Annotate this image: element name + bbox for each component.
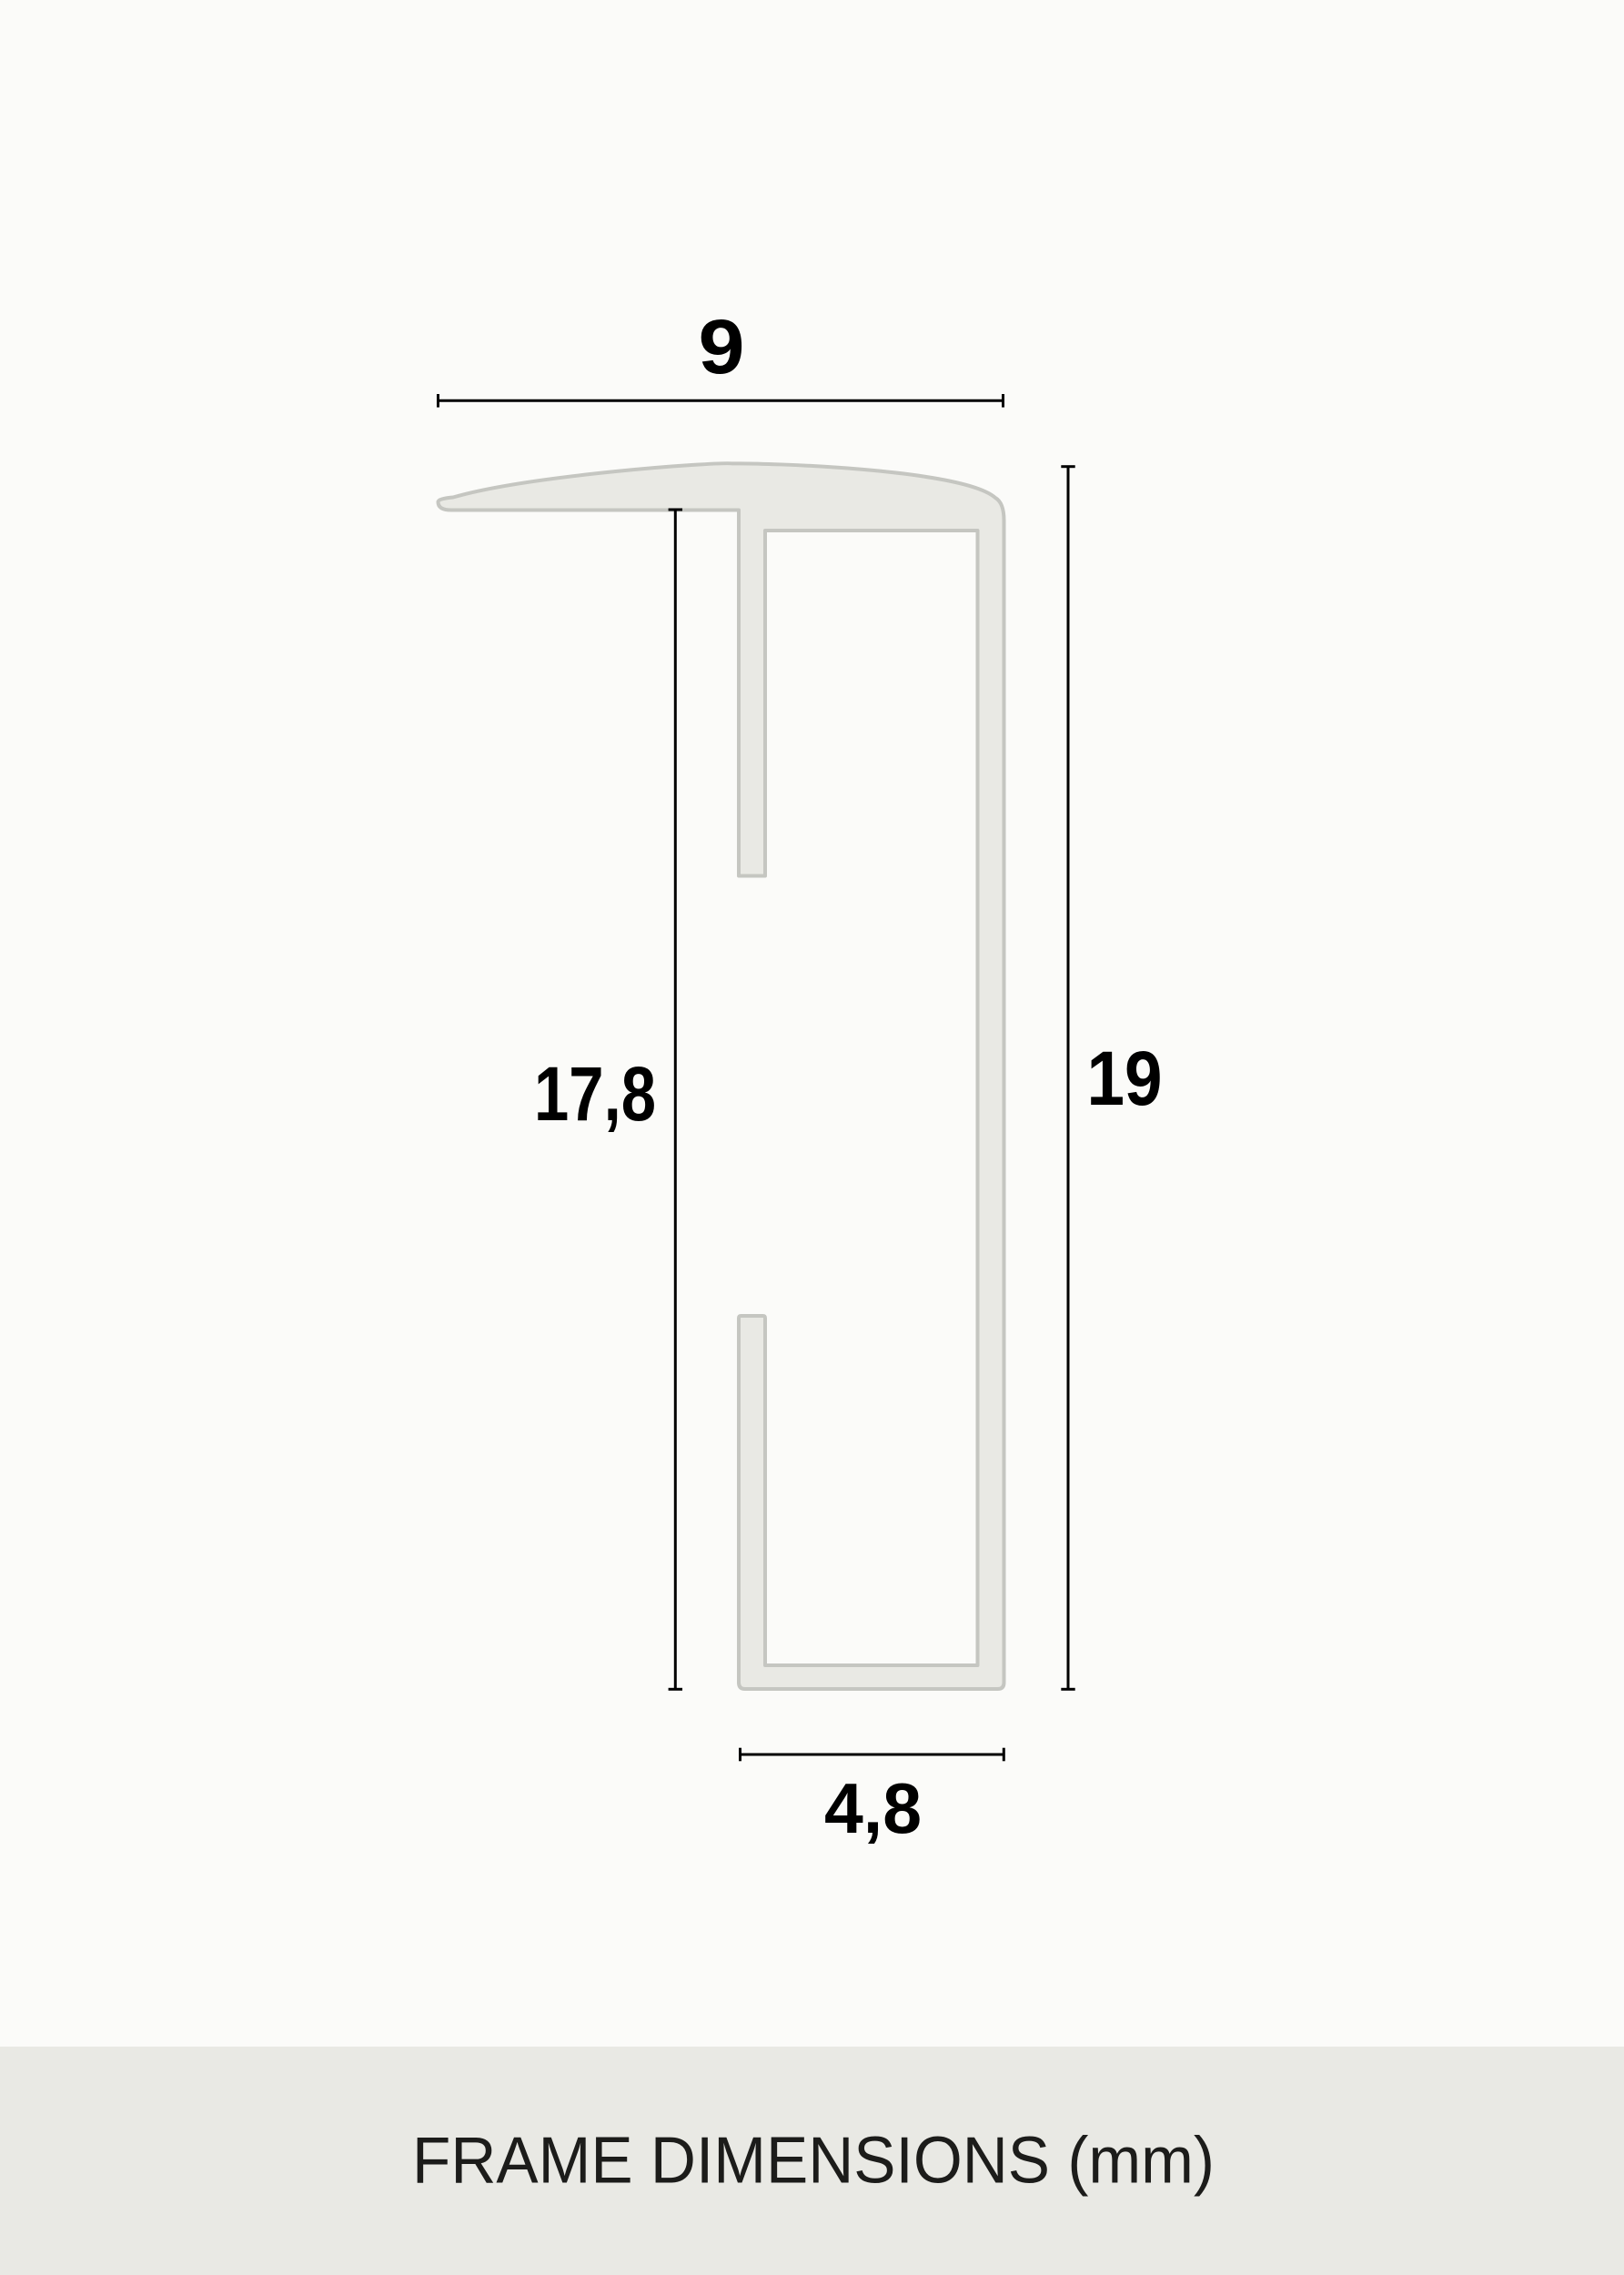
svg-text:FRAME DIMENSIONS (mm): FRAME DIMENSIONS (mm) xyxy=(412,2124,1215,2198)
svg-text:4,8: 4,8 xyxy=(824,1768,922,1848)
svg-text:9: 9 xyxy=(699,304,745,389)
svg-text:19: 19 xyxy=(1087,1036,1163,1121)
svg-text:17,8: 17,8 xyxy=(534,1051,656,1137)
